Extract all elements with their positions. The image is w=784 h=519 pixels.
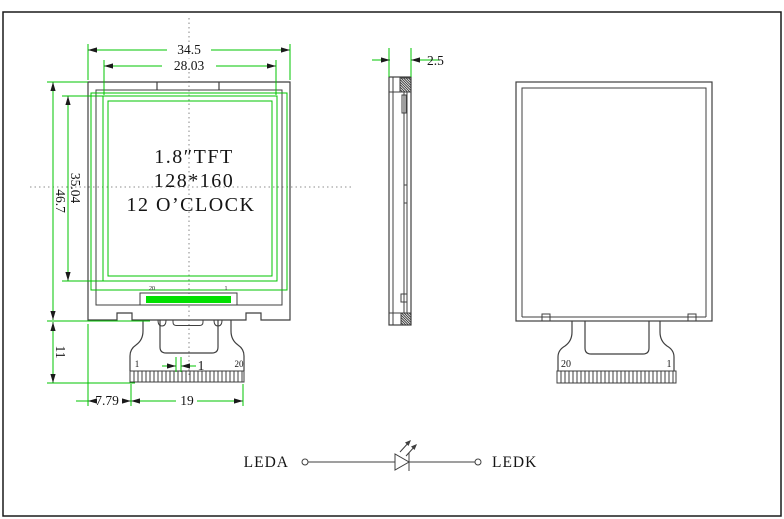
dimension-arrowhead	[181, 363, 190, 368]
front-pin-1-label: 1	[135, 359, 140, 369]
side-hatch-top	[400, 78, 411, 92]
dimension-arrowhead	[234, 398, 243, 403]
dim-pin-pitch-label: 1	[198, 358, 205, 373]
dimension-arrowhead	[411, 57, 420, 62]
led-anode-label: LEDA	[244, 454, 289, 471]
fpc-connector-back	[557, 321, 676, 383]
seal-pin-right-label: 1	[225, 286, 228, 292]
dim-outer-height-label: 46.7	[53, 189, 68, 213]
fpc-pins-front	[130, 371, 244, 382]
dimension-arrowhead	[50, 82, 55, 91]
dimension-arrowhead	[50, 322, 55, 331]
dimension-arrowhead	[267, 63, 276, 68]
dim-pin-span-label: 19	[180, 393, 194, 408]
hatch-line	[402, 313, 412, 323]
fpc-pins-back	[557, 371, 676, 383]
display-spec-line3: 12 O’CLOCK	[127, 194, 256, 216]
dimension-arrowhead	[104, 63, 113, 68]
labels: 1.8″TFT 128*160 12 O’CLOCK 1 20 20 1 20 …	[127, 146, 672, 370]
outline-drawing-svg: 34.5 28.03 46.7 35.04 11 7.79 19 1 2.5 1…	[0, 0, 784, 519]
side-slot-middle	[404, 185, 407, 203]
display-spec-line2: 128*160	[154, 170, 235, 192]
back-view	[516, 82, 712, 383]
back-pin-20-label: 20	[561, 359, 571, 370]
dimensions: 34.5 28.03 46.7 35.04 11 7.79 19 1 2.5	[47, 42, 444, 408]
dimension-arrowhead	[281, 47, 290, 52]
hatch-line	[401, 320, 406, 325]
back-fpc-window	[585, 321, 649, 354]
dim-outer-width-label: 34.5	[177, 42, 201, 57]
dimension-arrowhead	[167, 363, 176, 368]
side-profile	[389, 77, 411, 325]
dimension-arrowhead	[65, 272, 70, 281]
dimension-arrowhead	[88, 47, 97, 52]
pin-comb-outline	[130, 371, 244, 382]
back-outer-frame	[516, 82, 712, 321]
back-pin-1-label: 1	[667, 359, 672, 370]
back-inner-frame	[522, 88, 706, 317]
display-spec-line1: 1.8″TFT	[154, 146, 233, 168]
dimension-arrowhead	[50, 374, 55, 383]
led-diode-symbol	[395, 454, 409, 470]
dimension-lines	[53, 50, 440, 401]
dimension-arrowhead	[50, 311, 55, 320]
front-pin-20-label: 20	[235, 359, 245, 369]
dim-active-width-label: 28.03	[174, 58, 205, 73]
led-cathode-label: LEDK	[492, 454, 537, 471]
dimension-arrowhead	[122, 398, 131, 403]
seal-pin-left-label: 20	[149, 286, 155, 292]
dimension-arrowhead	[131, 398, 140, 403]
led-anode-terminal	[302, 459, 308, 465]
hatch-line	[400, 87, 405, 92]
bottom-notch-left	[158, 320, 166, 326]
hatch-line	[406, 78, 411, 83]
side-view	[389, 77, 411, 325]
side-hatch-bottom	[401, 313, 411, 325]
led-cathode-terminal	[475, 459, 481, 465]
fpc-connector-front	[130, 320, 244, 382]
led-circuit: LEDA LEDK	[244, 440, 538, 471]
dim-active-height-label: 35.04	[68, 173, 83, 204]
dim-pin-offset-label: 7.79	[95, 393, 119, 408]
dim-thickness-label: 2.5	[427, 53, 444, 68]
dimension-arrowhead	[65, 96, 70, 105]
dim-fpc-length-label: 11	[53, 346, 68, 359]
heat-seal-bar	[146, 296, 231, 303]
extension-lines	[47, 44, 411, 406]
bottom-center-tab	[173, 320, 203, 326]
drawing-sheet: 34.5 28.03 46.7 35.04 11 7.79 19 1 2.5 1…	[0, 0, 784, 519]
